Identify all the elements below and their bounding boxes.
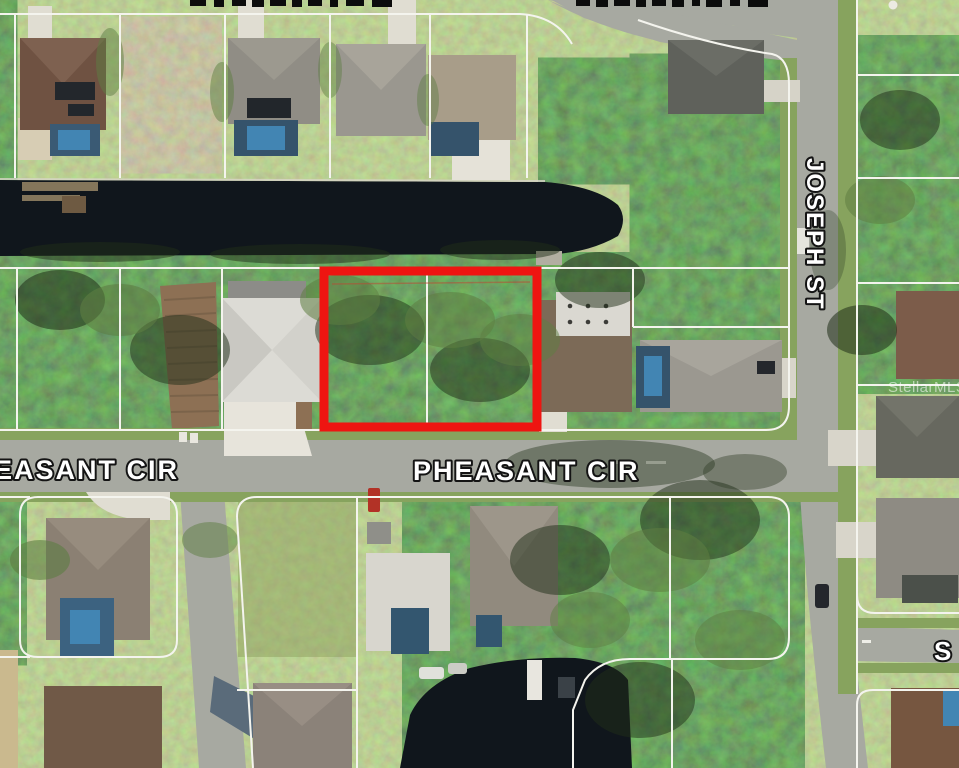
car-joseph-st [815, 584, 829, 608]
house-bottom-center-1 [253, 683, 352, 768]
woods-bottom-left-edge [0, 497, 26, 662]
street-label-pheasant-cir-center: PHEASANT CIR [413, 456, 640, 486]
house-right-bottom [891, 688, 959, 768]
house-mid-pool-home [636, 340, 782, 412]
street-label-joseph-st: JOSEPH ST [801, 158, 828, 311]
scrub-lot [125, 24, 217, 166]
clipped-street-label-right [576, 0, 768, 7]
aerial-parcel-map: EASANT CIR PHEASANT CIR JOSEPH ST S Stel… [0, 0, 959, 768]
vacant-lawn [238, 497, 358, 657]
watermark: StellarMLS [888, 379, 959, 396]
street-label-pheasant-cir-left: EASANT CIR [0, 455, 179, 485]
white-tank [889, 1, 898, 10]
house-bottom-left-1 [46, 518, 150, 656]
woods-canal-end [540, 60, 632, 182]
house-top-3 [336, 44, 426, 136]
house-right-mid [876, 498, 959, 603]
street-label-truncated-right: S [934, 636, 953, 666]
